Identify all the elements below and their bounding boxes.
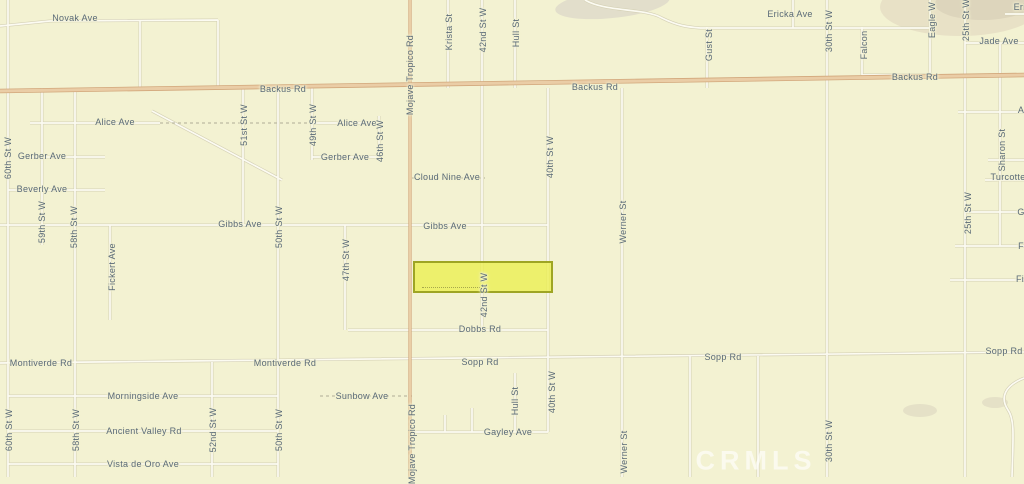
road-label: 52nd St W — [208, 408, 218, 453]
road-label: Alice Ave — [337, 118, 377, 128]
road-label: G — [1017, 207, 1024, 217]
road-label: Turcotte — [990, 172, 1024, 182]
road-label: Mojave Tropico Rd — [405, 35, 415, 115]
road-label: 51st St W — [239, 104, 249, 146]
road-label: Sopp Rd — [461, 357, 498, 367]
road-label: Hull St — [510, 387, 520, 416]
road-label: Ericka — [1014, 2, 1024, 12]
road-label: 50th St W — [274, 206, 284, 248]
road-label: 58th St W — [71, 409, 81, 451]
road-label: A — [1018, 105, 1024, 115]
road-label: Novak Ave — [52, 13, 98, 23]
road-label: Mojave Tropico Rd — [407, 404, 417, 484]
road-label: Sopp Rd — [985, 346, 1022, 356]
road-label: Krista St — [444, 14, 454, 51]
road-label: 40th St W — [545, 136, 555, 178]
road-label: 30th St W — [824, 420, 834, 462]
road-label: Dobbs Rd — [459, 324, 501, 334]
road-label: Morningside Ave — [108, 391, 179, 401]
road-label: Falcon — [859, 31, 869, 60]
road-label: 47th St W — [341, 239, 351, 281]
road-label: 42nd St W — [479, 273, 489, 318]
road-label: Fickert Ave — [107, 243, 117, 291]
road-label: Sunbow Ave — [336, 391, 389, 401]
road-label: Vista de Oro Ave — [107, 459, 179, 469]
road-label: Backus Rd — [892, 72, 938, 82]
road-label: Jade Ave — [979, 36, 1018, 46]
road-label: 30th St W — [824, 10, 834, 52]
road-label: 60th St W — [3, 137, 13, 179]
road-label: Beverly Ave — [17, 184, 68, 194]
road-label: Montiverde Rd — [10, 358, 72, 368]
road-label: Eagle W — [927, 2, 937, 38]
road-label: Fi — [1016, 274, 1024, 284]
road-label: Montiverde Rd — [254, 358, 316, 368]
road-label: F — [1018, 241, 1024, 251]
road-label: 49th St W — [308, 104, 318, 146]
road-label: 25th St W — [961, 0, 971, 41]
road-label: 59th St W — [37, 201, 47, 243]
road-label: Gerber Ave — [18, 151, 66, 161]
road-label: 46th St W — [375, 120, 385, 162]
road-label: Alice Ave — [95, 117, 135, 127]
road-label: Werner St — [619, 430, 629, 473]
road-label: Sharon St — [997, 129, 1007, 172]
road-label: 50th St W — [274, 409, 284, 451]
road-label: Backus Rd — [572, 82, 618, 92]
road-label: 60th St W — [4, 409, 14, 451]
road-label: Gust St — [704, 29, 714, 61]
road-label: Gibbs Ave — [218, 219, 262, 229]
road-label: 58th St W — [69, 206, 79, 248]
road-label: Hull St — [511, 19, 521, 48]
labels-layer: Novak AveBackus RdBackus RdBackus RdEric… — [0, 0, 1024, 477]
road-label: Ericka Ave — [767, 9, 812, 19]
road-label: Backus Rd — [260, 84, 306, 94]
road-label: 40th St W — [547, 371, 557, 413]
road-label: Gayley Ave — [484, 427, 532, 437]
road-label: Sopp Rd — [704, 352, 741, 362]
road-label: Ancient Valley Rd — [106, 426, 181, 436]
map-canvas[interactable]: { "map": { "watermark": "CRMLS", "colors… — [0, 0, 1024, 477]
crmls-watermark: CRMLS — [696, 446, 817, 477]
road-label: 42nd St W — [478, 8, 488, 53]
road-label: Cloud Nine Ave — [414, 172, 480, 182]
road-label: 25th St W — [963, 192, 973, 234]
road-label: Gibbs Ave — [423, 221, 467, 231]
road-label: Gerber Ave — [321, 152, 369, 162]
road-label: Werner St — [618, 200, 628, 243]
